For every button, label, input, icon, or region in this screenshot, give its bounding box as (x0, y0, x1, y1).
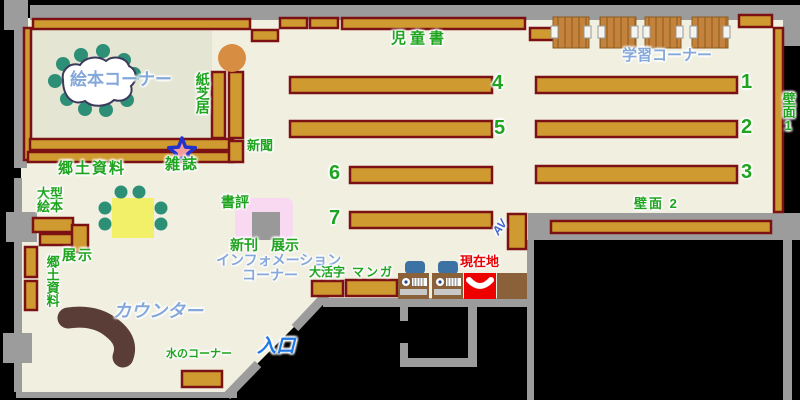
label-shelf-3: 3 (741, 162, 752, 183)
label-large-print: 大活字 (309, 266, 345, 279)
label-new-books: 新刊 (230, 238, 258, 253)
label-display-left: 展示 (62, 248, 94, 263)
label-shelf-1: 1 (741, 72, 752, 93)
kamishibai-table (218, 44, 246, 72)
label-info-line2: コーナー (242, 268, 298, 283)
bookshelf-2 (536, 121, 737, 137)
bookshelf-top-c (342, 18, 525, 29)
bookshelf-local-a (25, 247, 37, 277)
bookshelf-water-corner (182, 371, 222, 387)
bookshelf-6 (350, 167, 492, 183)
bookshelf-large-print (312, 281, 343, 296)
label-you-are-here: 現在地 (460, 255, 499, 269)
label-picture-book-corner: 絵本コーナー (70, 71, 172, 89)
label-shelf-4: 4 (492, 73, 503, 94)
label-shelf-7: 7 (329, 208, 340, 229)
bookshelf-newspaper (229, 141, 243, 162)
label-study-corner: 学習コーナー (622, 48, 712, 64)
reading-table (112, 198, 154, 238)
bookshelf-top-a (280, 18, 307, 28)
label-shelf-5: 5 (494, 118, 505, 139)
label-display-right: 展示 (271, 238, 299, 253)
new-books-display-stand (252, 212, 280, 240)
study-desk (551, 17, 591, 48)
opac-terminal (398, 273, 429, 299)
label-magazine: 雑誌 (165, 157, 199, 173)
bookshelf-large-books-b (40, 234, 73, 245)
label-shelf-2: 2 (741, 117, 752, 138)
label-large-picture-books-2: 絵本 (37, 200, 63, 214)
service-desk (497, 273, 527, 299)
bookshelf-large-books-a (33, 218, 73, 232)
label-water-corner: 水のコーナー (166, 349, 232, 361)
label-children-books: 児童書 (391, 31, 448, 47)
bookshelf-study-left (530, 28, 554, 40)
opac-terminal (432, 273, 463, 299)
bookshelf-7 (350, 212, 492, 228)
label-wall-2: 壁面 2 (634, 197, 679, 211)
bookshelf-wall2 (551, 221, 771, 233)
bookshelf-pbroom-bottom-a (30, 139, 233, 150)
label-entrance: 入口 (257, 337, 295, 357)
bookshelf-top-right (739, 15, 772, 27)
label-manga: マンガ (352, 266, 394, 279)
bookshelf-av (508, 214, 526, 249)
bookshelf-local-b (25, 281, 37, 310)
bookshelf-kamishibai-a (212, 72, 225, 138)
label-local-materials: 郷土資料 (58, 161, 126, 177)
label-local-materials-vertical: 郷土資料 (45, 255, 59, 307)
label-shelf-6: 6 (329, 163, 340, 184)
label-book-review: 書評 (221, 195, 249, 210)
bookshelf-5 (290, 121, 492, 137)
bookshelf-top-left (33, 19, 250, 29)
label-counter: カウンター (113, 302, 203, 321)
chair (405, 261, 425, 274)
study-desk (690, 17, 730, 48)
study-desk (643, 17, 683, 48)
bookshelf-3 (536, 166, 737, 183)
chair (438, 261, 458, 274)
current-location-marker (464, 273, 496, 299)
bookshelf-4 (290, 77, 492, 93)
bookshelf-top-b (310, 18, 338, 28)
label-kamishibai: 紙芝居 (195, 72, 210, 114)
bookshelf-kamishibai-b (229, 72, 243, 138)
label-newspaper: 新聞 (247, 139, 273, 153)
label-wall-1: 壁面1 (781, 92, 795, 133)
study-desk (598, 17, 638, 48)
bookshelf-top-bridge (252, 30, 278, 41)
bookshelf-1 (536, 77, 737, 93)
library-floor-map: 絵本コーナー 紙芝居 新聞 雑誌 郷土資料 児童書 学習コーナー 壁面1 壁面 … (0, 0, 800, 400)
bookshelf-manga (346, 280, 397, 296)
